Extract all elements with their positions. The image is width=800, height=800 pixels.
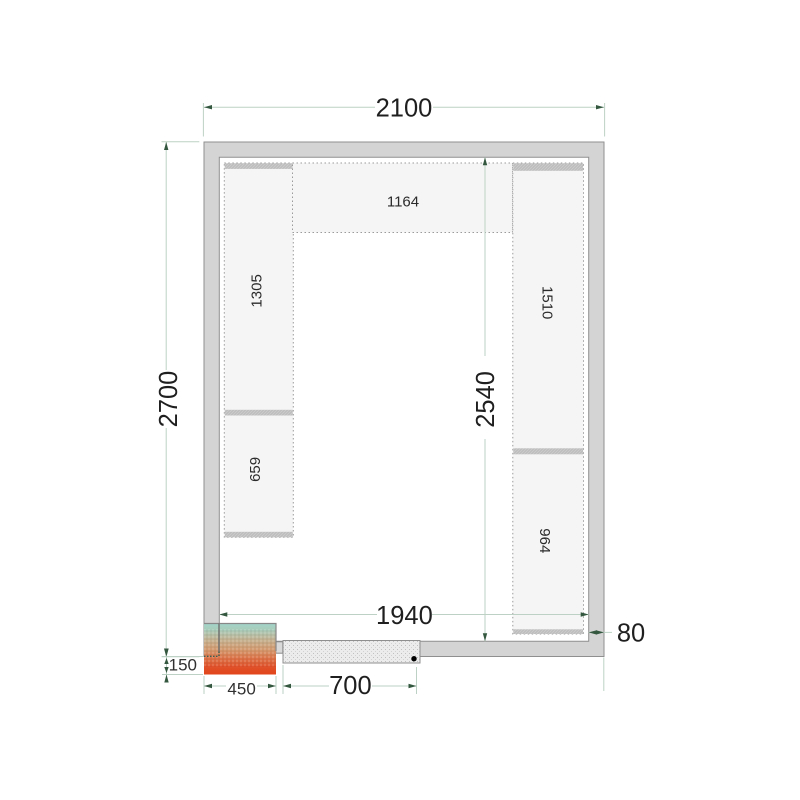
svg-text:1305: 1305 — [248, 274, 265, 307]
svg-text:1940: 1940 — [376, 602, 433, 630]
svg-text:2700: 2700 — [155, 371, 183, 428]
svg-text:700: 700 — [329, 672, 372, 700]
svg-text:2100: 2100 — [376, 94, 433, 122]
svg-text:964: 964 — [536, 528, 553, 553]
svg-text:450: 450 — [227, 680, 255, 699]
svg-text:659: 659 — [247, 457, 264, 482]
svg-text:1510: 1510 — [538, 286, 555, 319]
svg-text:1164: 1164 — [387, 193, 419, 210]
svg-text:2540: 2540 — [472, 371, 500, 428]
svg-text:80: 80 — [617, 619, 645, 647]
svg-text:150: 150 — [169, 656, 197, 675]
